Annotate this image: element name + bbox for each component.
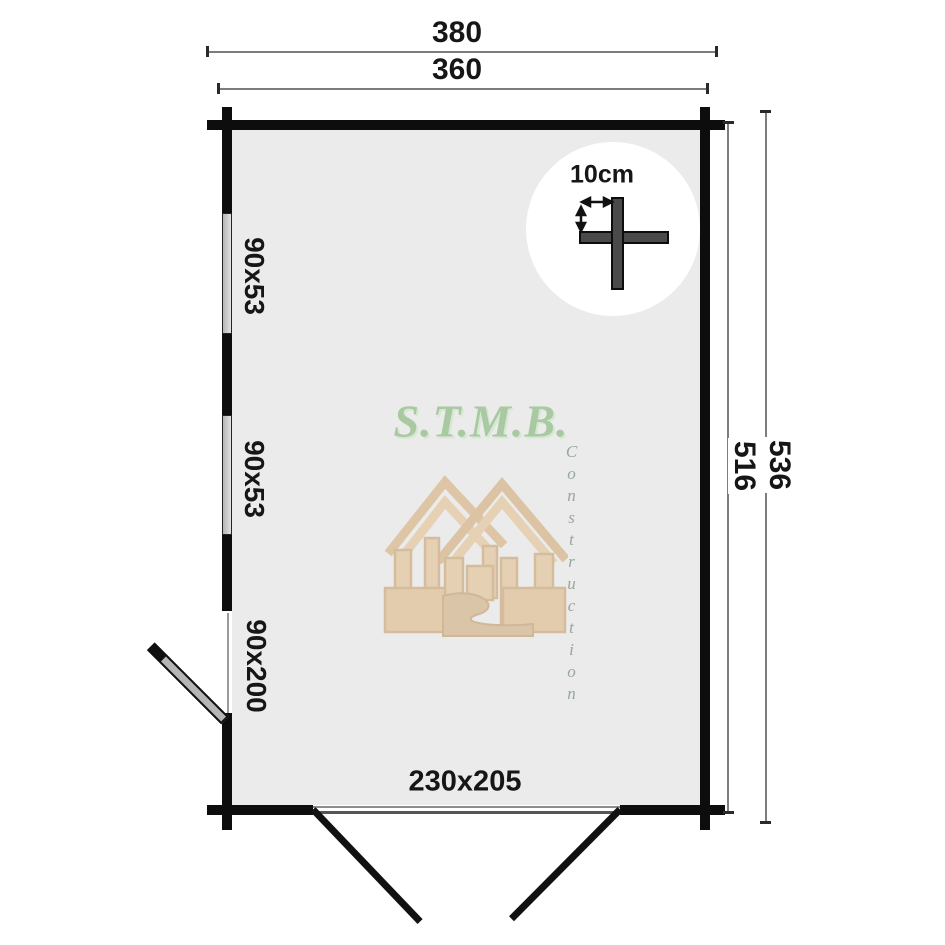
left-wall-segment-1 (222, 107, 232, 213)
wall-width-tick-right (706, 83, 709, 94)
right-wall (700, 107, 710, 830)
double-door-label: 230x205 (409, 768, 522, 797)
overall-depth-tick-bottom (760, 821, 771, 824)
wall-width-tick-left (217, 83, 220, 94)
double-door-right-leaf (509, 807, 622, 921)
scale-arrows-icon (540, 155, 630, 240)
side-door-label: 90x200 (242, 619, 270, 712)
overall-width-tick-right (715, 46, 718, 57)
left-wall-segment-2 (222, 332, 232, 415)
bottom-wall-right-segment (620, 805, 725, 815)
wall-width-line (218, 88, 708, 90)
overall-width-tick-left (206, 46, 209, 57)
overall-width-label: 380 (432, 18, 482, 48)
wall-depth-tick-bottom (723, 811, 734, 814)
left-wall-segment-4 (222, 722, 232, 830)
window-1 (222, 213, 232, 334)
double-door-threshold-line-1 (313, 806, 620, 808)
top-wall (207, 120, 725, 130)
house-logo-icon (383, 438, 568, 638)
side-door-leaf (147, 642, 229, 724)
double-door-threshold-line-2 (313, 811, 620, 814)
double-door-left-leaf (310, 807, 422, 924)
overall-depth-tick-top (760, 110, 771, 113)
overall-depth-label: 536 (763, 437, 795, 493)
left-wall-segment-3 (222, 533, 232, 611)
window-2-label: 90x53 (240, 440, 268, 518)
side-door-leaf-tip (148, 644, 166, 662)
wall-width-label: 360 (432, 55, 482, 85)
window-2 (222, 415, 232, 535)
window-1-label: 90x53 (240, 237, 268, 315)
wall-depth-tick-top (723, 121, 734, 124)
side-door-opening-line (227, 613, 229, 720)
floor-plan: S.T.M.B. Construction 10cm (0, 0, 945, 945)
wall-depth-label: 516 (728, 438, 760, 494)
